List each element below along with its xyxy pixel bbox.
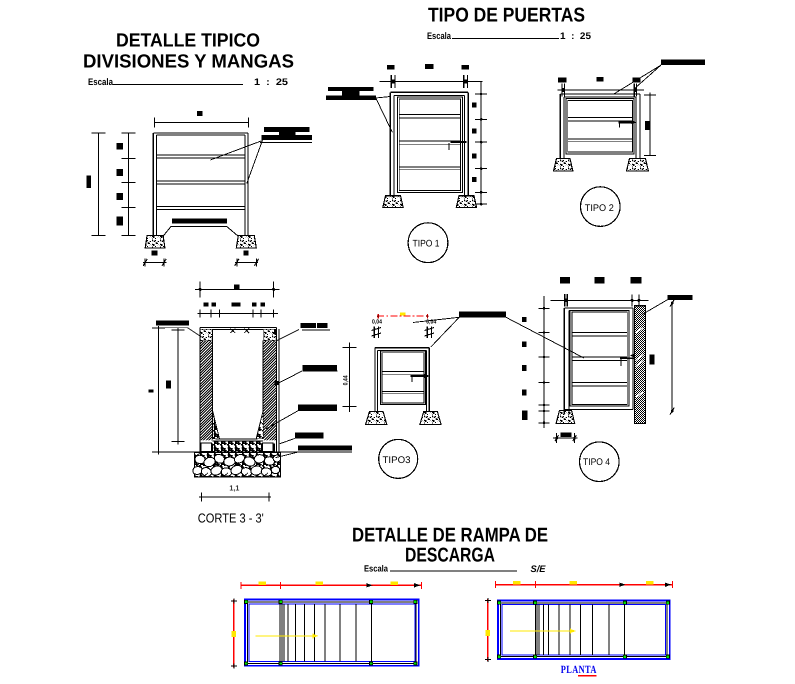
svg-text:DETALLE TIPICO: DETALLE TIPICO: [116, 31, 260, 52]
svg-text:TIPO 4: TIPO 4: [583, 457, 611, 468]
svg-text:Escala: Escala: [364, 563, 389, 573]
svg-text:0,44: 0,44: [342, 375, 349, 385]
svg-text:DESCARGA: DESCARGA: [405, 544, 495, 566]
svg-text:TIPO 1: TIPO 1: [413, 238, 440, 249]
svg-text:1 : 25: 1 : 25: [560, 31, 592, 42]
svg-text:0,04: 0,04: [372, 319, 383, 326]
svg-text:DIVISIONES Y MANGAS: DIVISIONES Y MANGAS: [83, 52, 294, 73]
svg-text:1,1: 1,1: [229, 484, 239, 493]
svg-text:S/E: S/E: [531, 564, 547, 575]
svg-text:PLANTA: PLANTA: [561, 664, 597, 676]
svg-text:DETALLE DE RAMPA DE: DETALLE DE RAMPA DE: [352, 524, 548, 546]
svg-text:1 : 25: 1 : 25: [254, 77, 289, 88]
svg-text:Escala: Escala: [427, 31, 452, 42]
svg-text:CORTE 3 - 3': CORTE 3 - 3': [198, 510, 264, 525]
svg-text:TIPO DE PUERTAS: TIPO DE PUERTAS: [428, 5, 585, 27]
svg-text:TIPO 2: TIPO 2: [585, 203, 614, 214]
svg-text:TIPO3: TIPO3: [383, 455, 411, 466]
svg-text:Escala: Escala: [88, 77, 114, 88]
